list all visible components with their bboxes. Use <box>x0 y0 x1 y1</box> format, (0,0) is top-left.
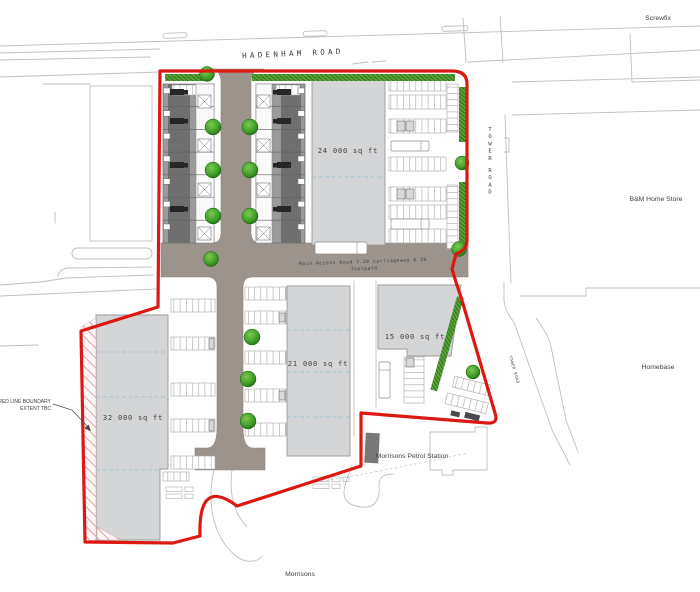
hadenham-road-label: HADENHAM ROAD <box>242 47 344 60</box>
building-32000 <box>82 315 168 541</box>
petrol-station-label: Morrisons Petrol Station <box>376 453 449 460</box>
svg-text:EXTENT TBC: EXTENT TBC <box>20 406 51 412</box>
building-21000 <box>287 286 350 456</box>
vehicle-outline <box>315 242 367 254</box>
building-32000-label: 32 000 sq ft <box>103 414 163 422</box>
svg-text:RED LINE BOUNDARY: RED LINE BOUNDARY <box>0 399 52 405</box>
parking-northeast <box>389 77 458 249</box>
site-plan-drawing: HADENHAM ROAD TOWERROAD TOWER ROAD Screw… <box>0 0 700 592</box>
homebase-label: Homebase <box>642 364 675 371</box>
morrisons-label: Morrisons <box>285 571 315 578</box>
building-21000-label: 21 000 sq ft <box>288 360 348 368</box>
site-plan-canvas: HADENHAM ROAD TOWERROAD TOWER ROAD Screw… <box>0 0 700 592</box>
building-24000-label: 24 000 sq ft <box>318 147 378 155</box>
tower-road-small-label: TOWER ROAD <box>508 355 521 384</box>
screwfix-label: Screwfix <box>645 15 671 22</box>
building-24000 <box>312 79 385 245</box>
svg-text:footpath: footpath <box>351 265 378 272</box>
building-15000-label: 15 000 sq ft <box>385 333 445 341</box>
terrace-units-east <box>256 84 305 243</box>
boundary-note: RED LINE BOUNDARY EXTENT TBC <box>0 399 91 431</box>
bm-home-store-label: B&M Home Store <box>630 196 683 203</box>
tower-road-label: TOWERROAD <box>488 127 492 196</box>
